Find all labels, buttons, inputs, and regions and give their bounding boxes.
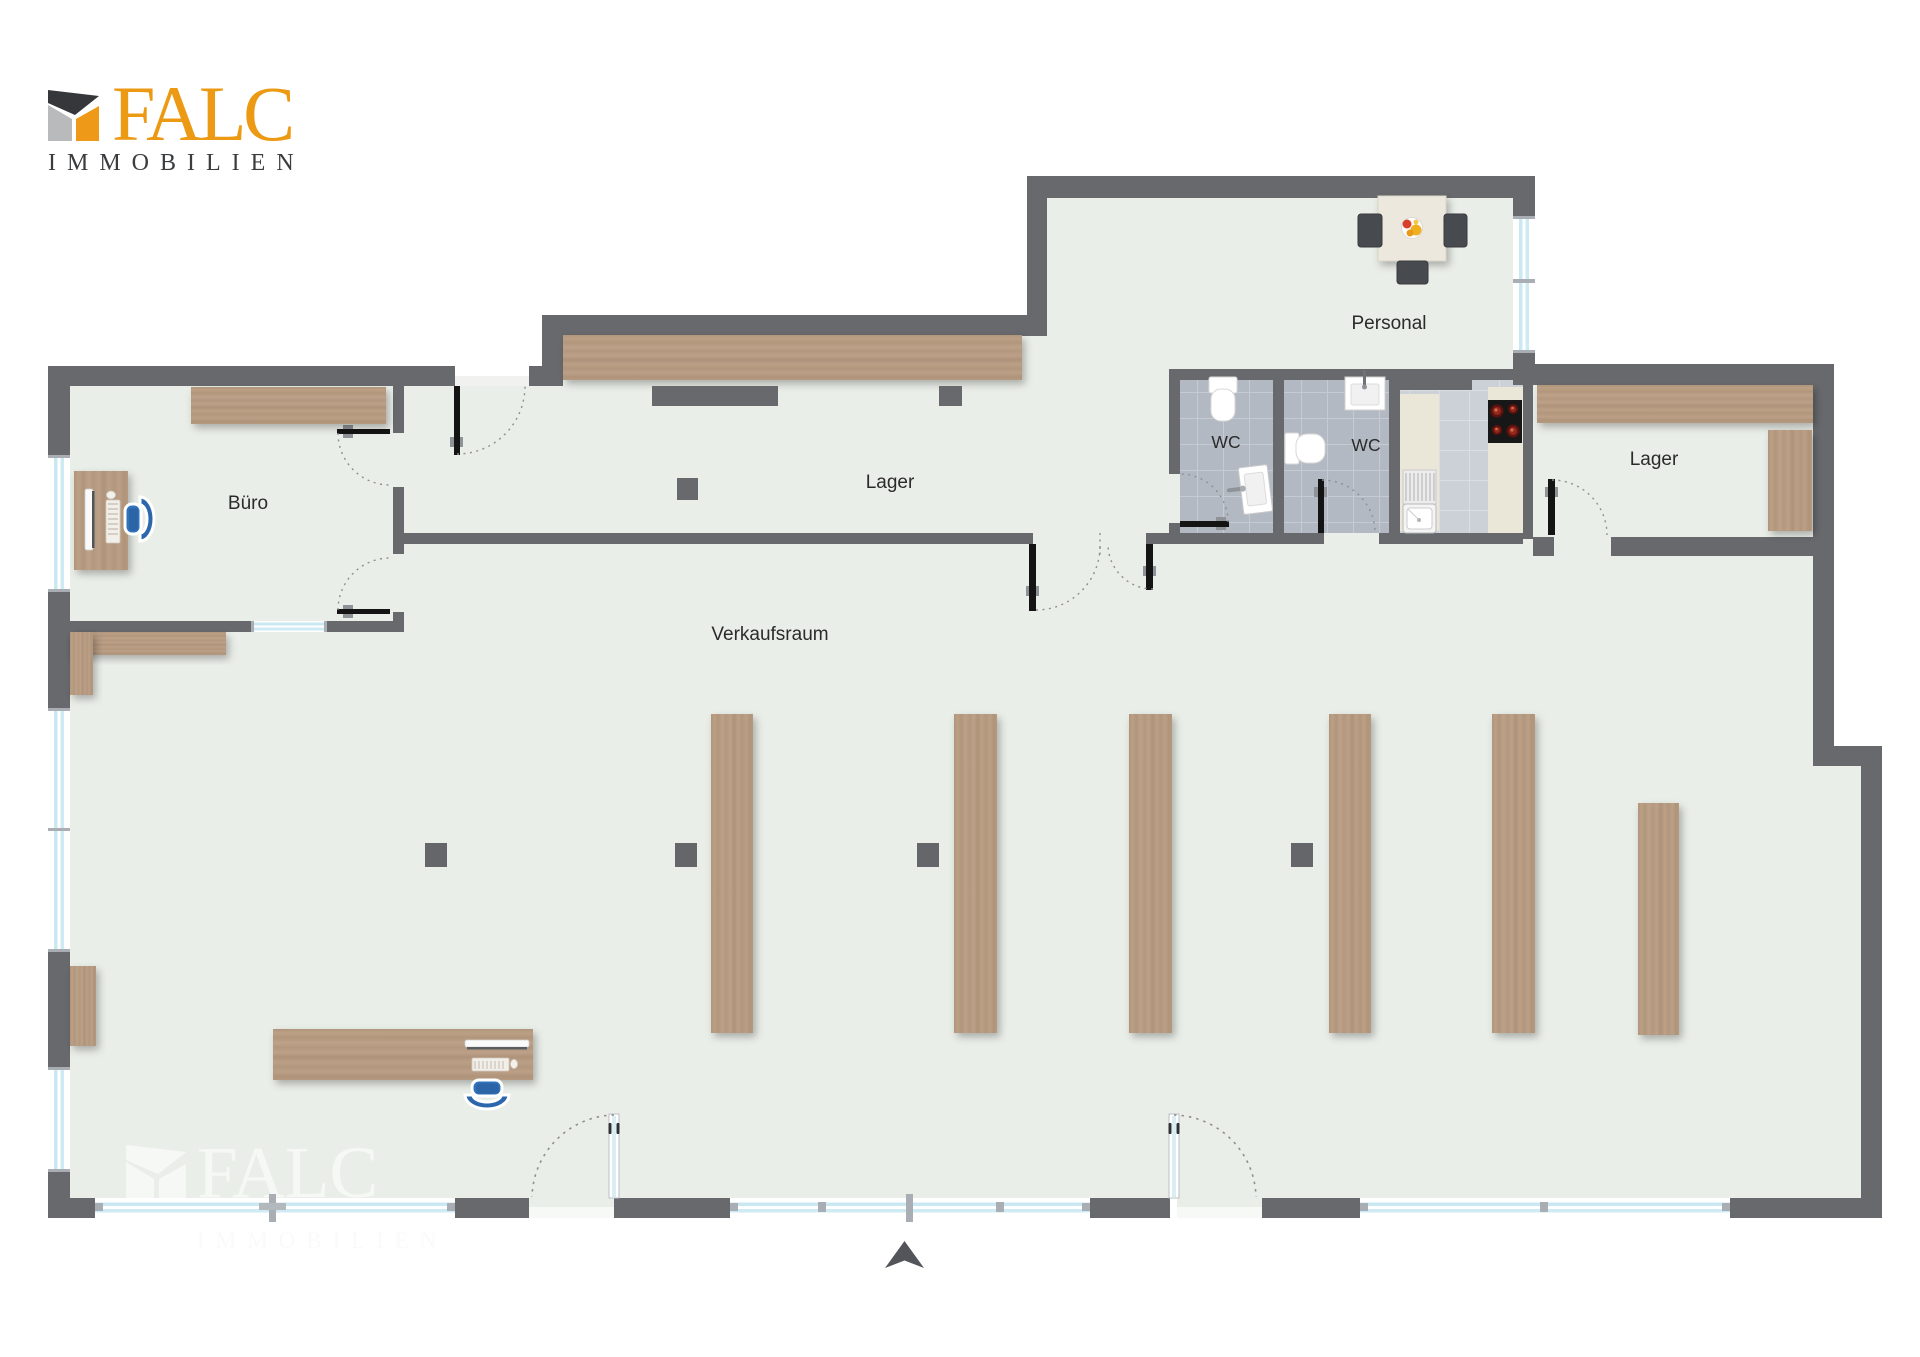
- svg-text:IMMOBILIEN: IMMOBILIEN: [48, 150, 305, 176]
- svg-text:Lager: Lager: [866, 472, 915, 493]
- svg-text:WC: WC: [1211, 432, 1240, 452]
- svg-text:Personal: Personal: [1352, 313, 1427, 334]
- svg-text:WC: WC: [1351, 435, 1380, 455]
- svg-text:IMMOBILIEN: IMMOBILIEN: [197, 1228, 448, 1253]
- svg-text:Verkaufsraum: Verkaufsraum: [711, 624, 828, 645]
- svg-text:Büro: Büro: [228, 493, 268, 514]
- svg-text:FALC: FALC: [112, 70, 292, 157]
- svg-text:Lager: Lager: [1630, 449, 1679, 470]
